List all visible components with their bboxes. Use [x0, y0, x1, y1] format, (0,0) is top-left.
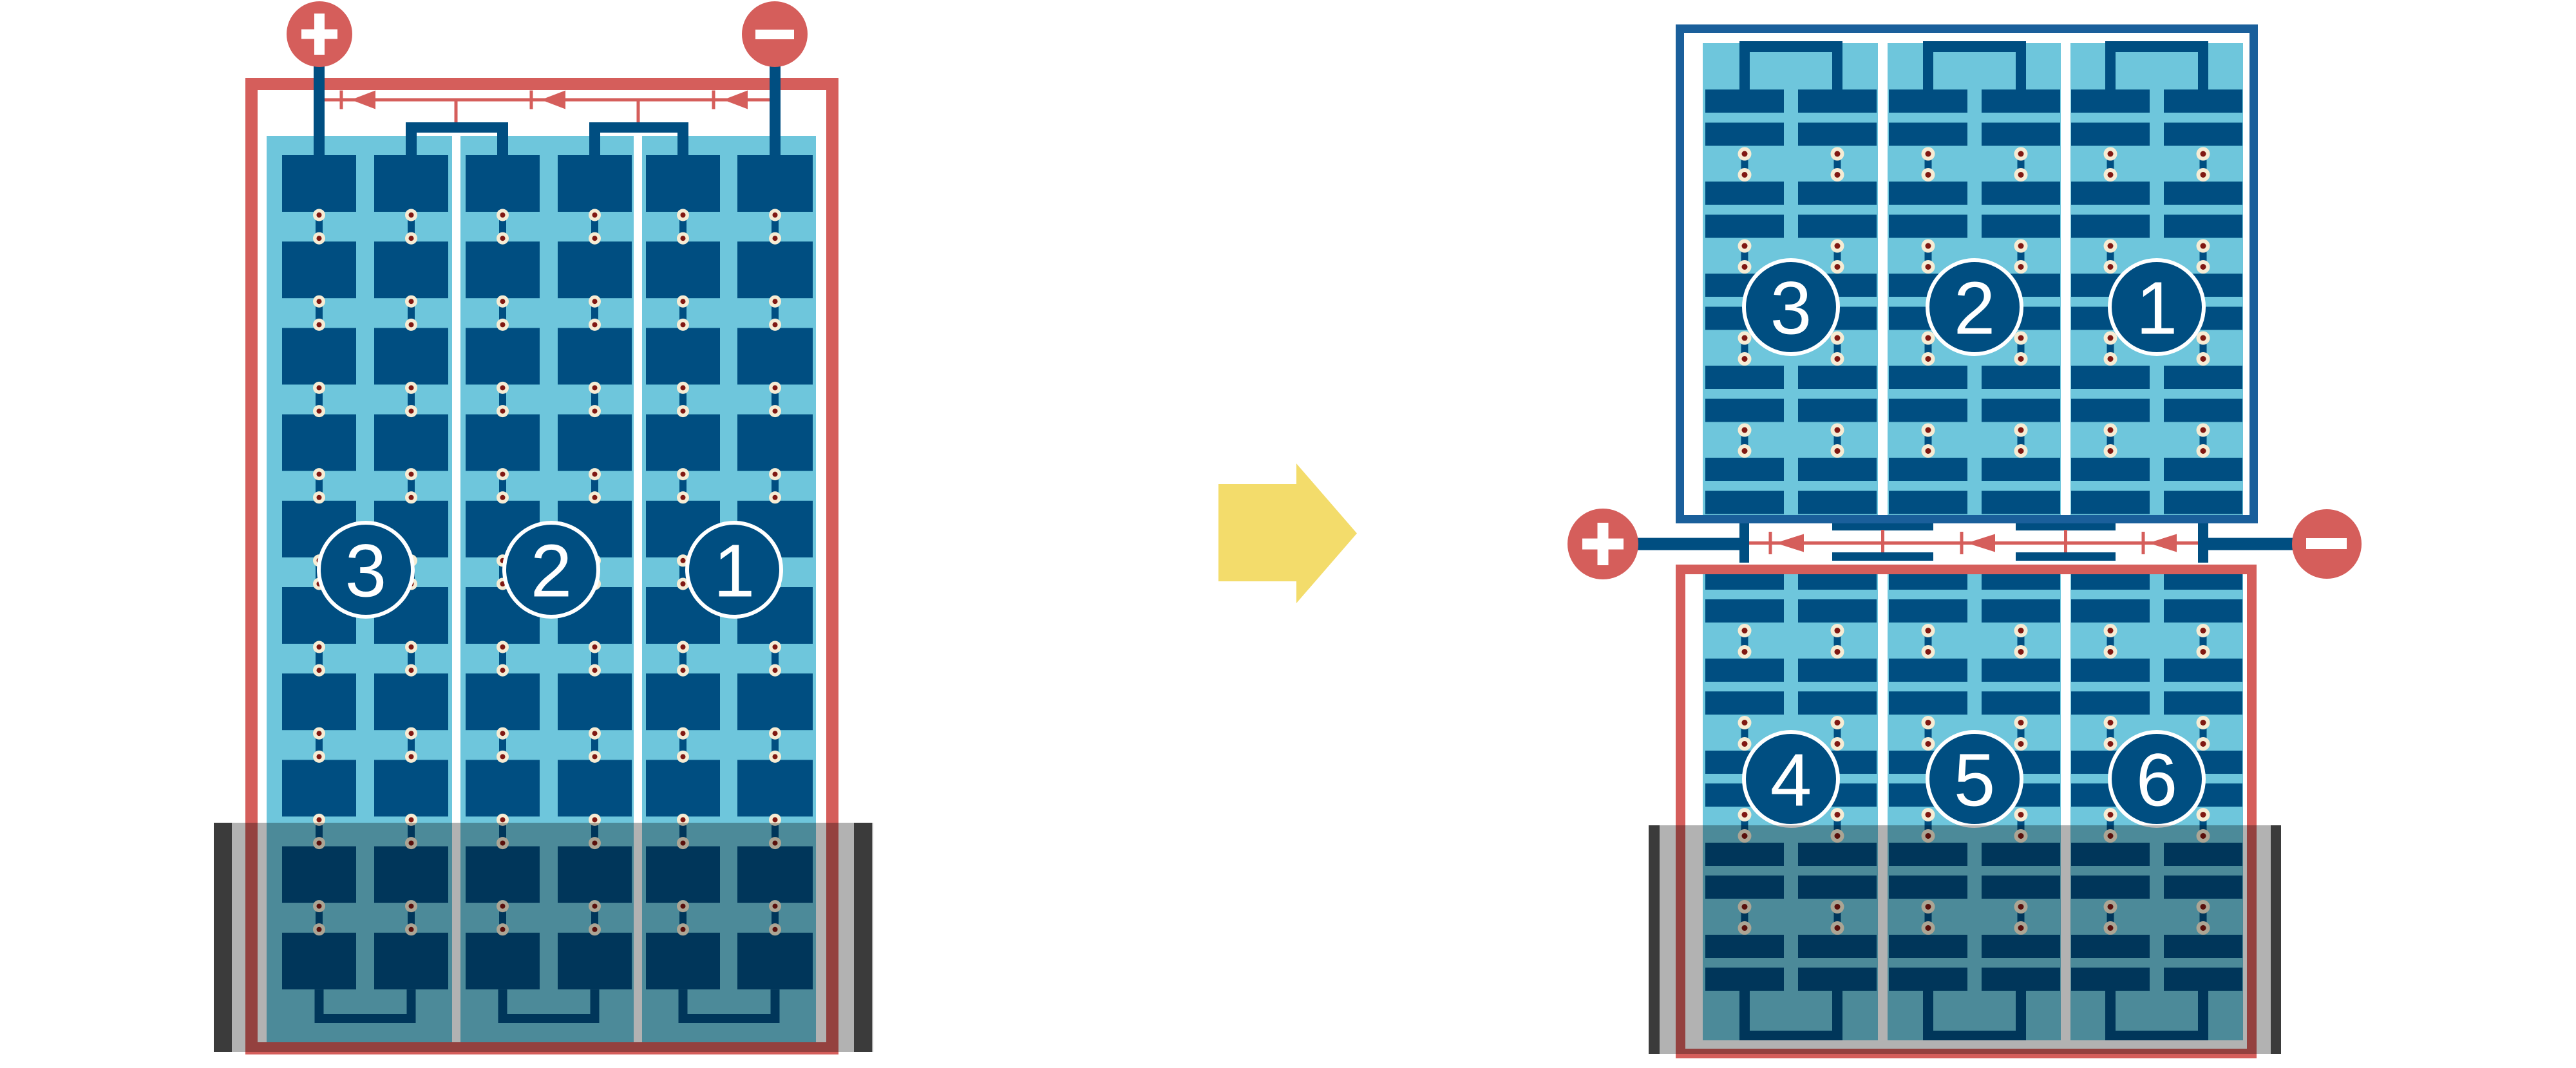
- svg-text:2: 2: [531, 529, 573, 613]
- svg-text:3: 3: [1770, 267, 1812, 350]
- svg-text:1: 1: [714, 529, 755, 613]
- svg-text:3: 3: [345, 529, 387, 613]
- svg-text:2: 2: [1954, 267, 1996, 350]
- svg-text:1: 1: [2136, 267, 2178, 350]
- svg-text:6: 6: [2136, 738, 2178, 822]
- svg-text:5: 5: [1954, 738, 1996, 822]
- svg-text:4: 4: [1770, 738, 1812, 822]
